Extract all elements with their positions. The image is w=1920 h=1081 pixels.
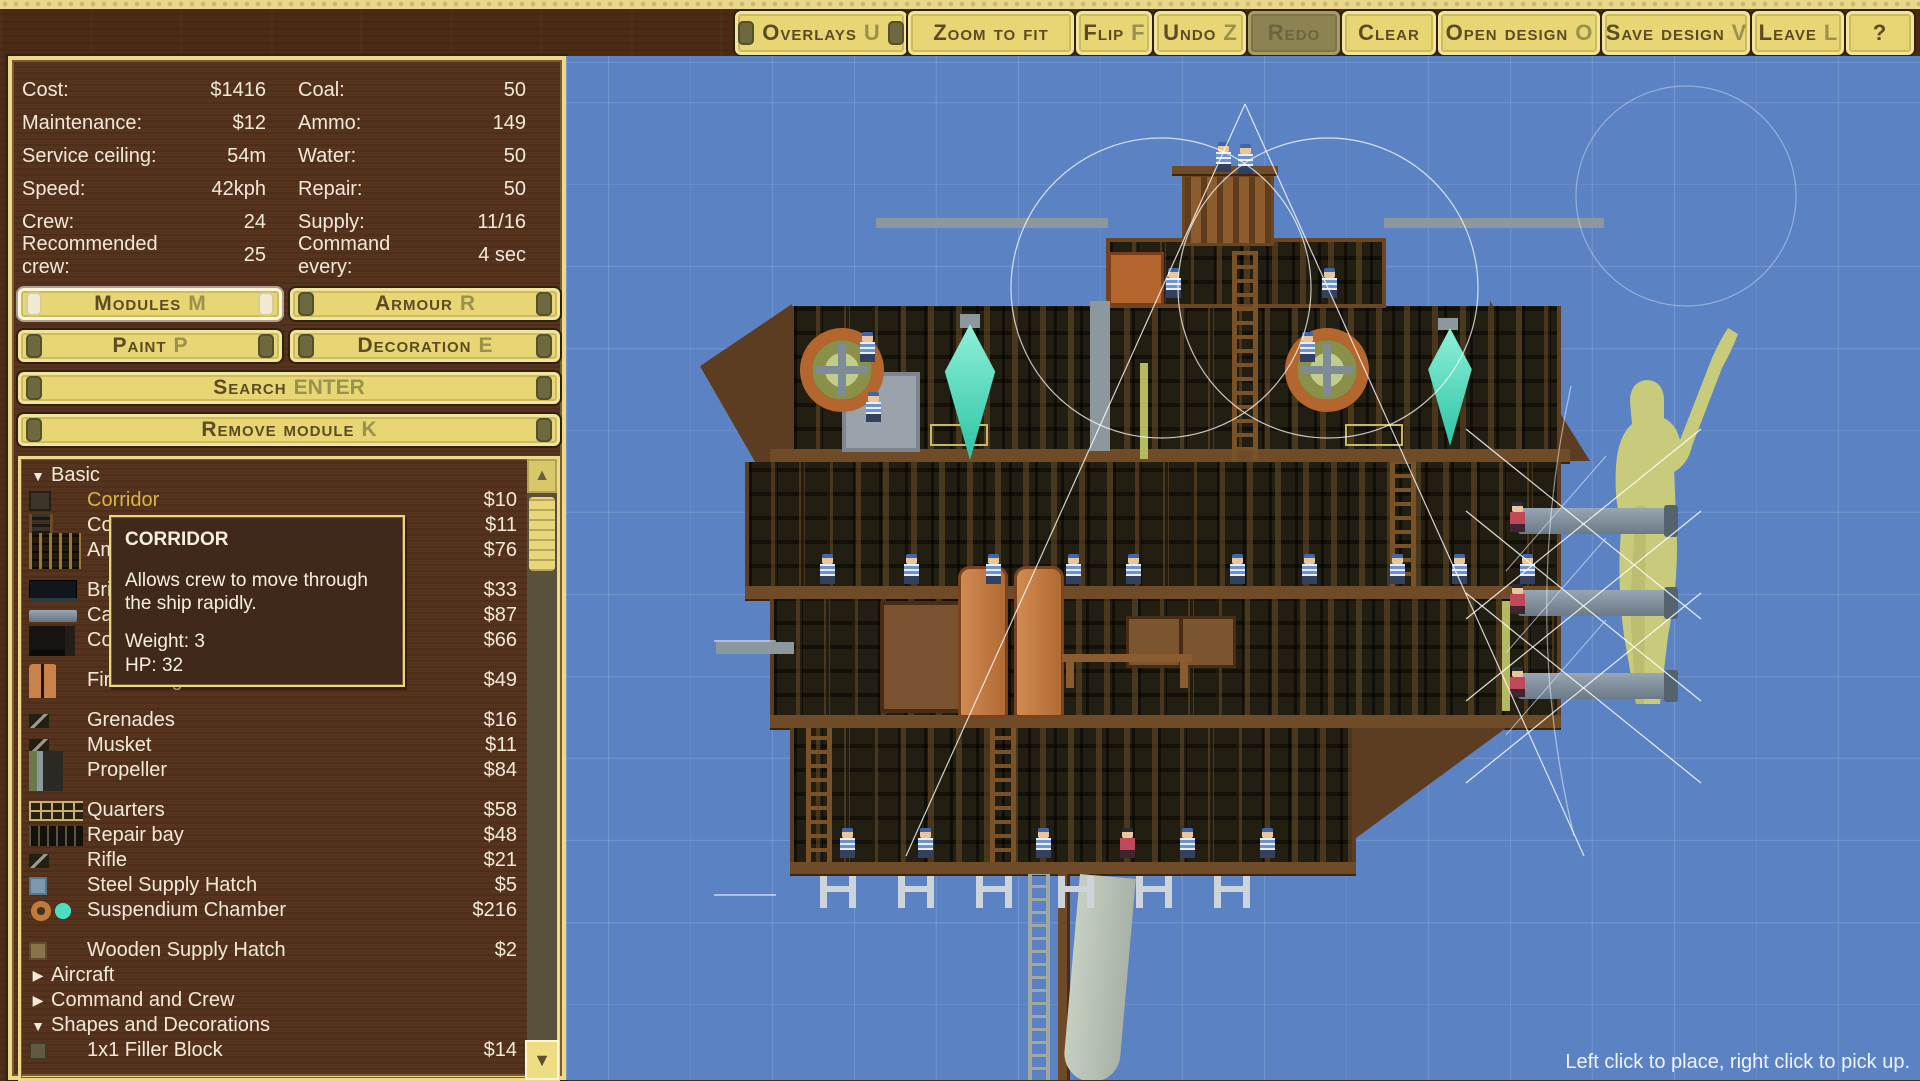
crew-sprite xyxy=(1238,144,1253,174)
corridor-icon xyxy=(29,491,51,511)
cannon xyxy=(716,642,794,654)
design-side-panel: Cost:$1416 Coal:50 Maintenance:$12 Ammo:… xyxy=(8,56,566,1080)
ladder xyxy=(1390,462,1416,586)
hatch-outline xyxy=(1345,424,1403,446)
supply-hatch xyxy=(820,876,856,908)
boiler-tank xyxy=(1014,566,1064,718)
ship-part xyxy=(770,599,1561,717)
ammo-store-icon xyxy=(29,533,81,569)
crew-sprite xyxy=(1520,554,1535,584)
design-canvas[interactable]: Left click to place, right click to pick… xyxy=(566,56,1920,1080)
module-tooltip: CORRIDOR Allows crew to move through the… xyxy=(109,515,405,687)
category-command-and-crew[interactable]: ▶ Command and Crew xyxy=(21,988,527,1013)
modules-tab-button[interactable]: ModulesM xyxy=(18,288,282,320)
module-item-steel-supply-hatch[interactable]: Steel Supply Hatch $5 xyxy=(21,873,527,898)
table xyxy=(1062,654,1192,662)
zoom-to-fit-button[interactable]: Zoom to fit xyxy=(908,11,1074,55)
placement-hint: Left click to place, right click to pick… xyxy=(1565,1051,1910,1074)
crew-sprite xyxy=(1300,332,1315,362)
toggle-knob-icon xyxy=(536,292,552,316)
crew-sprite xyxy=(1322,268,1337,298)
filler-block-icon xyxy=(29,1042,47,1060)
crew-sprite xyxy=(1302,554,1317,584)
overlays-label: Overlays xyxy=(762,20,857,46)
ship-part xyxy=(1066,662,1074,688)
cabinet xyxy=(1126,616,1236,668)
crew-sprite xyxy=(1216,142,1231,172)
undo-button[interactable]: Undo Z xyxy=(1154,11,1246,55)
module-item-wooden-supply-hatch[interactable]: Wooden Supply Hatch $2 xyxy=(21,938,527,963)
ladder xyxy=(1232,251,1258,461)
marine-sprite xyxy=(1510,667,1525,697)
toggle-knob-icon xyxy=(258,334,274,358)
scroll-up-button[interactable]: ▲ xyxy=(527,459,557,493)
rope-ladder xyxy=(1028,874,1050,1080)
suspendium-fan xyxy=(800,328,884,412)
leave-button[interactable]: Leave L xyxy=(1752,11,1844,55)
suspendium-fan xyxy=(1285,328,1369,412)
paint-tab-button[interactable]: PaintP xyxy=(18,330,282,362)
toggle-knob-icon xyxy=(26,418,42,442)
fire-extinguisher-icon xyxy=(29,664,57,698)
redo-button: Redo xyxy=(1248,11,1340,55)
ship-part xyxy=(770,449,1570,464)
crow-nest xyxy=(1182,174,1274,246)
clear-button[interactable]: Clear xyxy=(1342,11,1436,55)
scroll-thumb[interactable] xyxy=(529,497,555,571)
crew-sprite xyxy=(1390,554,1405,584)
stat-row: Cost:$1416 Coal:50 xyxy=(12,74,562,107)
figurehead-statue xyxy=(1574,306,1744,706)
cannon xyxy=(1518,590,1678,616)
save-design-button[interactable]: Save design V xyxy=(1602,11,1750,55)
ship-part xyxy=(1438,318,1458,330)
repair-bay-icon xyxy=(29,826,83,846)
category-shapes-and-decorations[interactable]: ▼ Shapes and Decorations xyxy=(21,1013,527,1038)
pillar xyxy=(1090,301,1110,451)
crew-sprite xyxy=(1166,268,1181,298)
crew-sprite xyxy=(904,554,919,584)
ship-part xyxy=(700,304,792,526)
decoration-tab-button[interactable]: DecorationE xyxy=(290,330,560,362)
pipe xyxy=(1140,363,1148,459)
firing-arc-overlay xyxy=(566,56,1920,1080)
crew-sprite xyxy=(1230,554,1245,584)
crew-sprite xyxy=(860,332,875,362)
ship-stats: Cost:$1416 Coal:50 Maintenance:$12 Ammo:… xyxy=(12,74,562,272)
ship-part xyxy=(1106,238,1386,308)
tooltip-title: CORRIDOR xyxy=(125,529,389,551)
quarters-icon xyxy=(29,801,83,821)
crew-sprite xyxy=(918,828,933,858)
pipe xyxy=(1502,601,1510,711)
category-basic[interactable]: ▼ Basic xyxy=(21,463,527,488)
down-arrow-icon: ▼ xyxy=(533,1050,551,1071)
toggle-knob-icon xyxy=(26,376,42,400)
rifle-icon xyxy=(29,854,49,868)
door xyxy=(880,601,980,713)
deflated-sail xyxy=(1062,874,1136,1080)
ship-part xyxy=(770,715,1561,730)
list-scrollbar[interactable]: ▲ ▼ xyxy=(527,459,557,1078)
crew-sprite xyxy=(986,554,1001,584)
crew-sprite xyxy=(866,392,881,422)
crew-sprite xyxy=(1066,554,1081,584)
module-item-repair-bay[interactable]: Repair bay $48 xyxy=(21,823,527,848)
toggle-knob-icon xyxy=(298,334,314,358)
crew-sprite xyxy=(1036,828,1051,858)
airship-design xyxy=(566,56,1920,1080)
flip-button[interactable]: Flip F xyxy=(1076,11,1152,55)
module-item-quarters[interactable]: Quarters $58 xyxy=(21,798,527,823)
cannon xyxy=(1518,508,1678,534)
expand-arrow-icon: ▶ xyxy=(27,992,49,1009)
module-item-musket[interactable]: Musket $11 xyxy=(21,733,527,758)
suspendium-chamber-icon xyxy=(29,893,75,929)
coal-store-icon xyxy=(29,626,75,656)
wooden-supply-hatch-icon xyxy=(29,942,47,960)
supply-hatch xyxy=(1136,876,1172,908)
crew-sprite xyxy=(840,828,855,858)
crew-sprite xyxy=(820,554,835,584)
grenades-icon xyxy=(29,714,49,728)
stat-row: Recommended crew:25 Command every:4 sec xyxy=(12,239,562,272)
module-item-corridor[interactable]: Corridor $10 xyxy=(21,488,527,513)
bridge-console xyxy=(842,372,920,452)
toggle-knob-icon xyxy=(738,21,754,45)
suspendium-crystal xyxy=(1424,328,1476,446)
ship-part xyxy=(1356,728,1506,838)
toggle-knob-icon xyxy=(536,334,552,358)
tooltip-weight: Weight: 3 xyxy=(125,631,389,653)
module-item-suspendium-chamber[interactable]: Suspendium Chamber $216 xyxy=(21,898,527,923)
ship-part xyxy=(790,862,1356,876)
ladder xyxy=(806,728,832,862)
propeller-icon xyxy=(29,751,63,791)
top-trim-strip xyxy=(0,0,1920,9)
marine-sprite xyxy=(1510,502,1525,532)
crew-sprite xyxy=(1452,554,1467,584)
module-item-rifle[interactable]: Rifle $21 xyxy=(21,848,527,873)
ship-part xyxy=(745,462,1561,588)
ship-part xyxy=(960,314,980,328)
cannon xyxy=(1518,673,1678,699)
stat-row: Speed:42kph Repair:50 xyxy=(12,173,562,206)
mast xyxy=(1384,218,1604,228)
bridge-icon xyxy=(29,580,77,602)
expand-arrow-icon: ▶ xyxy=(27,967,49,984)
armour-tab-button[interactable]: ArmourR xyxy=(290,288,560,320)
module-item-propeller[interactable]: Propeller $84 xyxy=(21,758,527,783)
expand-arrow-icon: ▼ xyxy=(27,468,49,484)
stat-row: Maintenance:$12 Ammo:149 xyxy=(12,107,562,140)
toggle-knob-icon xyxy=(536,376,552,400)
ship-part xyxy=(1490,301,1590,461)
help-button[interactable]: ? xyxy=(1846,11,1914,55)
module-item-1x1-filler-block[interactable]: 1x1 Filler Block $14 xyxy=(21,1038,527,1063)
supply-hatch xyxy=(1214,876,1250,908)
mast xyxy=(876,218,1108,228)
ship-part xyxy=(790,728,1356,864)
toggle-knob-icon xyxy=(26,334,42,358)
pole xyxy=(1058,874,1070,1080)
open-design-button[interactable]: Open design O xyxy=(1438,11,1600,55)
search-button[interactable]: SearchENTER xyxy=(18,372,560,404)
toggle-knob-icon xyxy=(258,292,274,316)
tooltip-description: Allows crew to move through the ship rap… xyxy=(125,569,389,615)
up-arrow-icon: ▲ xyxy=(534,467,550,485)
crew-sprite xyxy=(1180,828,1195,858)
stat-row: Service ceiling:54m Water:50 xyxy=(12,140,562,173)
ship-part xyxy=(745,586,1561,601)
crew-sprite xyxy=(1260,828,1275,858)
ladder xyxy=(990,728,1016,862)
marine-sprite xyxy=(1120,828,1135,858)
ship-part xyxy=(1180,662,1188,688)
hatch-outline xyxy=(930,424,988,446)
supply-hatch xyxy=(976,876,1012,908)
expand-arrow-icon: ▼ xyxy=(27,1018,49,1034)
tooltip-hp: HP: 32 xyxy=(125,655,389,677)
toggle-knob-icon xyxy=(298,292,314,316)
module-item-grenades[interactable]: Grenades $16 xyxy=(21,708,527,733)
toggle-knob-icon xyxy=(536,418,552,442)
scroll-down-button[interactable]: ▼ xyxy=(527,1042,557,1078)
supply-hatch xyxy=(898,876,934,908)
ship-part xyxy=(790,306,1561,451)
toolbar: Overlays U Zoom to fit Flip F Undo Z Red… xyxy=(0,9,1920,58)
suspendium-crystal xyxy=(940,324,1000,460)
crew-sprite xyxy=(1126,554,1141,584)
remove-module-button[interactable]: Remove moduleK xyxy=(18,414,560,446)
overlays-button[interactable]: Overlays U xyxy=(735,11,907,55)
category-aircraft[interactable]: ▶ Aircraft xyxy=(21,963,527,988)
cannon-icon xyxy=(29,610,77,622)
furnace xyxy=(1108,252,1164,306)
marine-sprite xyxy=(1510,584,1525,614)
toggle-knob-icon xyxy=(26,292,42,316)
boiler-tank xyxy=(958,566,1008,718)
ship-part xyxy=(1172,166,1278,176)
supply-hatch xyxy=(1058,876,1094,908)
toggle-knob-icon xyxy=(888,21,904,45)
overlays-hotkey: U xyxy=(864,20,880,46)
